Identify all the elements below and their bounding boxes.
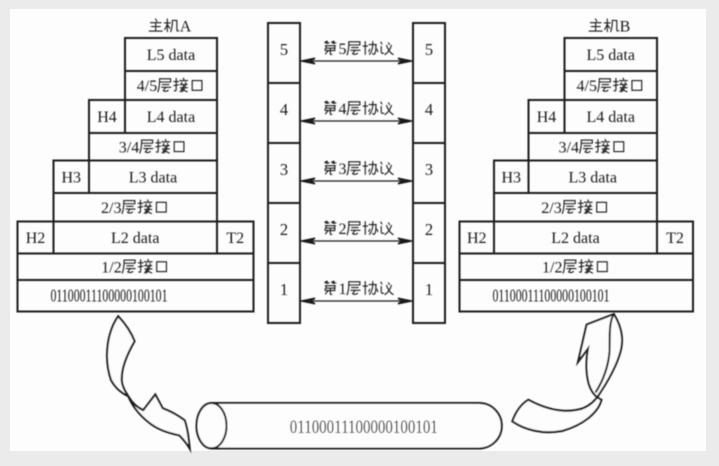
svg-text:L4 data: L4 data <box>147 109 195 126</box>
svg-text:4/5: 4/5 <box>137 78 157 95</box>
svg-text:H2: H2 <box>467 230 487 247</box>
svg-text:2/3: 2/3 <box>541 200 561 217</box>
svg-text:5: 5 <box>280 40 288 59</box>
svg-text:L5 data: L5 data <box>147 47 195 64</box>
svg-text:01100011100000100101: 01100011100000100101 <box>51 286 168 306</box>
svg-text:H2: H2 <box>26 230 46 247</box>
svg-text:1: 1 <box>425 280 433 299</box>
svg-text:5: 5 <box>339 41 347 58</box>
svg-text:L2 data: L2 data <box>111 230 159 247</box>
svg-text:2: 2 <box>425 220 433 239</box>
svg-text:T2: T2 <box>226 230 244 247</box>
svg-text:5: 5 <box>425 40 433 59</box>
svg-text:L2 data: L2 data <box>551 230 599 247</box>
svg-text:3: 3 <box>280 160 288 179</box>
svg-text:2/3: 2/3 <box>101 200 121 217</box>
svg-text:4: 4 <box>280 100 288 119</box>
svg-text:L3 data: L3 data <box>129 169 177 186</box>
svg-text:1: 1 <box>280 280 288 299</box>
svg-text:B: B <box>620 19 631 36</box>
svg-text:2: 2 <box>280 220 288 239</box>
svg-text:3/4: 3/4 <box>559 139 579 156</box>
svg-text:01100011100000100101: 01100011100000100101 <box>493 286 610 306</box>
svg-text:L3 data: L3 data <box>569 169 617 186</box>
svg-text:4: 4 <box>425 100 433 119</box>
svg-text:1: 1 <box>339 281 347 298</box>
svg-text:01100011100000100101: 01100011100000100101 <box>290 417 438 438</box>
svg-text:1/2: 1/2 <box>101 259 121 276</box>
svg-text:2: 2 <box>339 221 347 238</box>
svg-text:4/5: 4/5 <box>577 78 597 95</box>
svg-text:L4 data: L4 data <box>587 109 635 126</box>
svg-text:H3: H3 <box>501 169 521 186</box>
svg-text:3: 3 <box>339 161 347 178</box>
svg-text:4: 4 <box>339 101 347 118</box>
svg-text:L5 data: L5 data <box>587 47 635 64</box>
svg-text:1/2: 1/2 <box>542 259 562 276</box>
svg-text:H4: H4 <box>97 109 117 126</box>
svg-text:H4: H4 <box>537 109 557 126</box>
svg-text:A: A <box>180 19 192 36</box>
svg-text:H3: H3 <box>61 169 81 186</box>
svg-text:3: 3 <box>425 160 433 179</box>
svg-text:3/4: 3/4 <box>119 139 139 156</box>
svg-text:T2: T2 <box>666 230 684 247</box>
